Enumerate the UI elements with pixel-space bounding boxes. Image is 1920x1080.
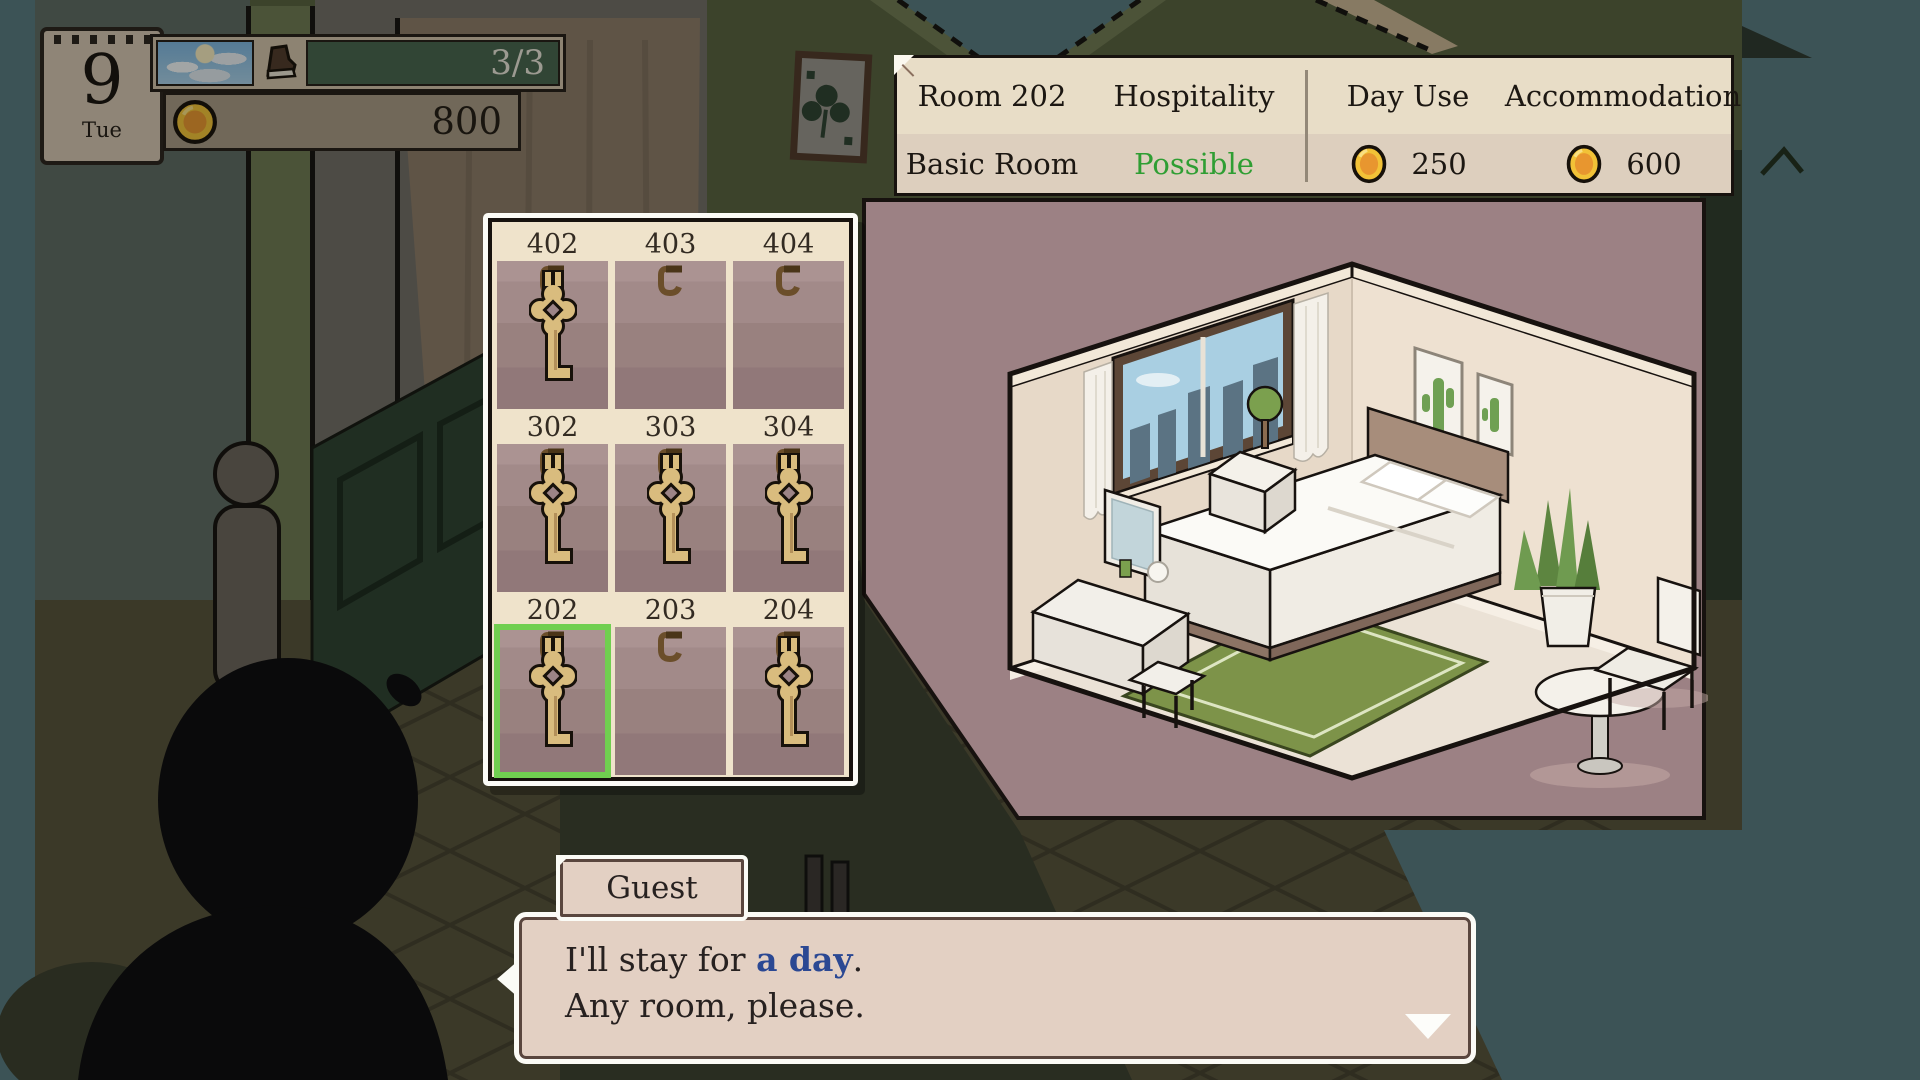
- dialogue-line-2: Any room, please.: [565, 983, 1431, 1029]
- key-slot-202[interactable]: [497, 627, 608, 775]
- speaker-name: Guest: [606, 870, 697, 906]
- key-slot-403[interactable]: [615, 261, 726, 409]
- key-slot-number: 302: [497, 412, 608, 443]
- key-slot-404[interactable]: [733, 261, 844, 409]
- room-key-icon: [765, 453, 813, 575]
- day-use-price-cell: 250: [1301, 144, 1515, 184]
- speaker-tag: Guest: [556, 855, 748, 921]
- room-key-icon: [529, 636, 577, 758]
- key-slot-203[interactable]: [615, 627, 726, 775]
- key-slot-number: 402: [497, 229, 608, 260]
- room-preview-panel: [858, 190, 1708, 832]
- coin-icon: [1349, 144, 1389, 184]
- room-key-icon: [765, 636, 813, 758]
- key-hook-icon: [774, 264, 804, 298]
- key-slot-number: 202: [497, 595, 608, 626]
- room-info-panel: Room 202 Hospitality Day Use Accommodati…: [894, 55, 1734, 196]
- key-hook-icon: [656, 630, 686, 664]
- room-key-icon: [647, 453, 695, 575]
- key-slot-number: 403: [615, 229, 726, 260]
- accommodation-price-cell: 600: [1515, 144, 1731, 184]
- panel-divider: [1305, 70, 1308, 182]
- room-type: Basic Room: [897, 147, 1087, 181]
- accommodation-header: Accommodation: [1515, 79, 1731, 113]
- key-slot-204[interactable]: [733, 627, 844, 775]
- key-rack-panel: 402403404302303304202203204: [483, 213, 858, 786]
- key-slot-number: 203: [615, 595, 726, 626]
- hospitality-header: Hospitality: [1087, 79, 1301, 113]
- continue-arrow-icon[interactable]: [1405, 1014, 1451, 1039]
- key-slot-303[interactable]: [615, 444, 726, 592]
- room-key-icon: [529, 270, 577, 392]
- coin-icon: [1564, 144, 1604, 184]
- key-slot-number: 204: [733, 595, 844, 626]
- dialogue-highlight: a day: [756, 940, 853, 979]
- key-slot-304[interactable]: [733, 444, 844, 592]
- key-hook-icon: [656, 264, 686, 298]
- hospitality-value: Possible: [1087, 147, 1301, 181]
- dialogue-line-1: I'll stay for a day.: [565, 937, 1431, 983]
- key-slot-number: 303: [615, 412, 726, 443]
- accommodation-price: 600: [1626, 147, 1681, 181]
- key-slot-402[interactable]: [497, 261, 608, 409]
- isometric-room-art: [858, 190, 1708, 832]
- key-rack-inner: 402403404302303304202203204: [492, 222, 849, 777]
- room-key-icon: [529, 453, 577, 575]
- game-screen: 9 Tue 3/3 800: [0, 0, 1920, 1080]
- key-slot-number: 304: [733, 412, 844, 443]
- dialogue-box[interactable]: I'll stay for a day. Any room, please.: [514, 912, 1476, 1064]
- dialogue-tail: [497, 960, 519, 998]
- tag-fold-corner: [556, 855, 570, 869]
- room-name: Room 202: [897, 79, 1087, 113]
- key-slot-302[interactable]: [497, 444, 608, 592]
- day-use-header: Day Use: [1301, 79, 1515, 113]
- key-slot-number: 404: [733, 229, 844, 260]
- day-use-price: 250: [1411, 147, 1466, 181]
